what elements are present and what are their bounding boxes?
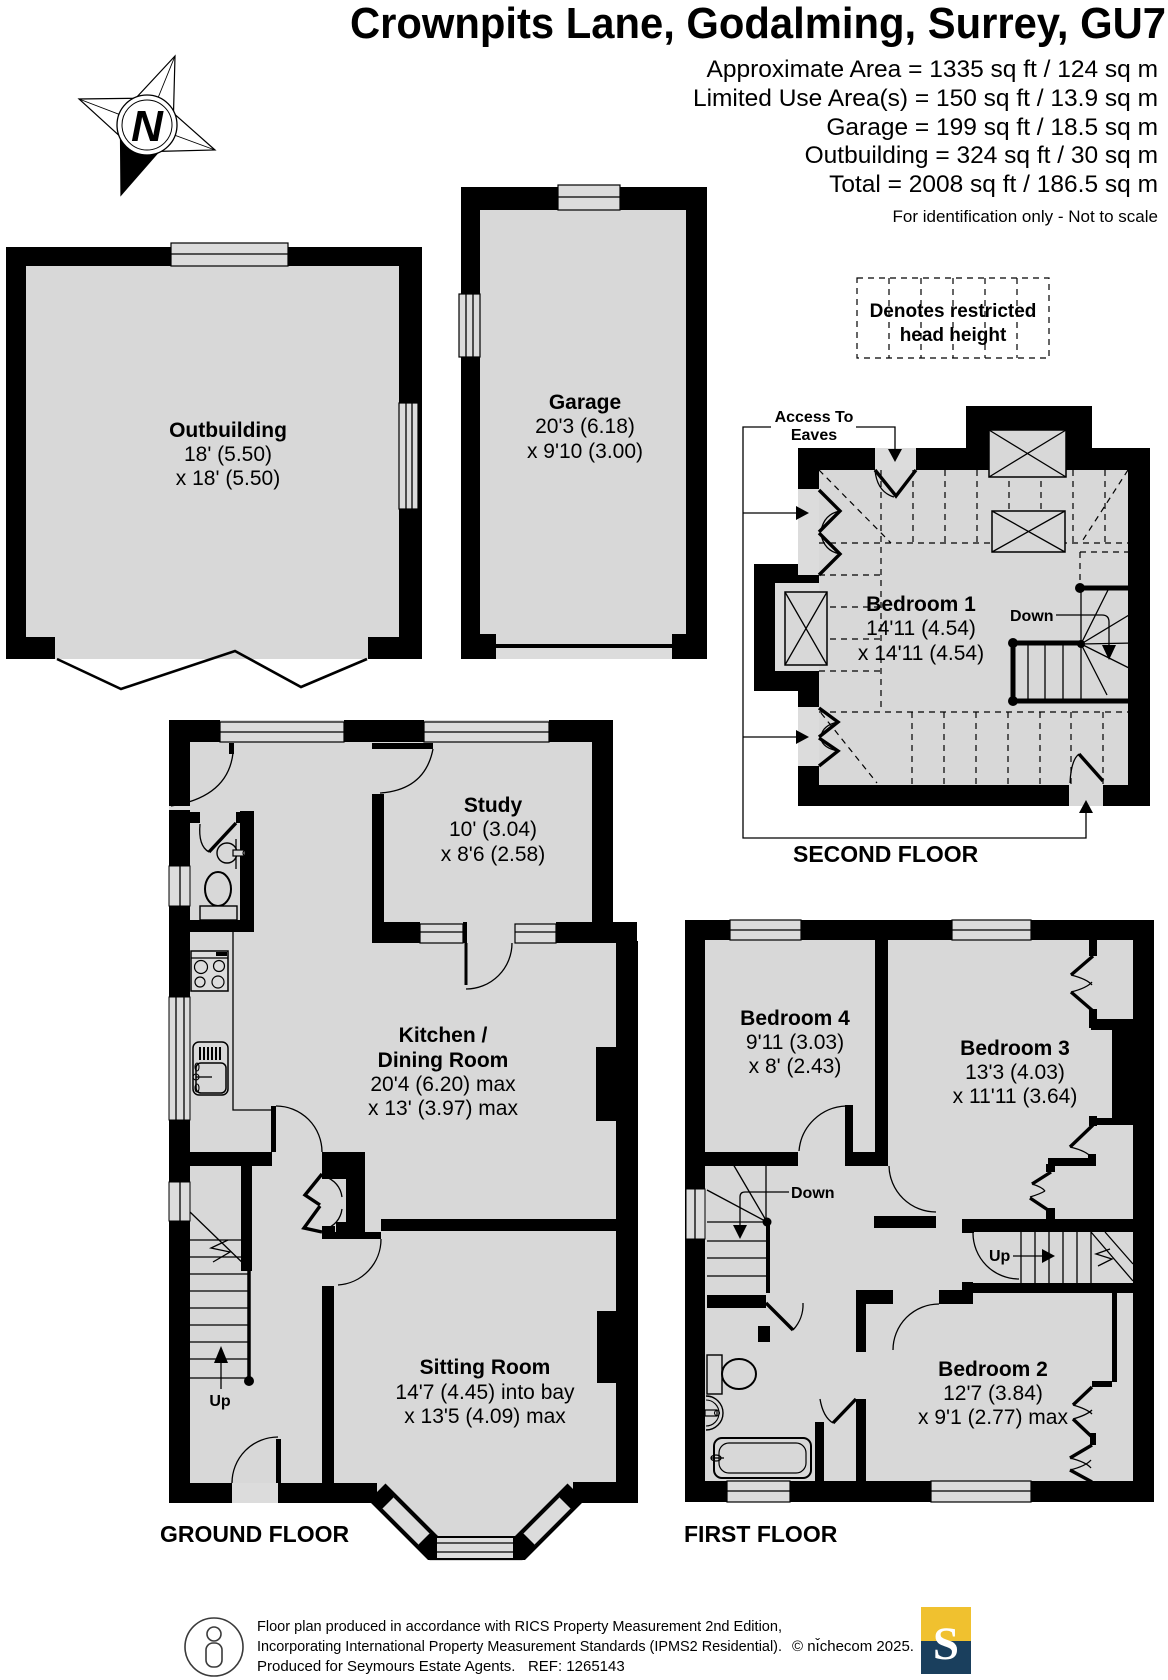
svg-text:Produced for Seymours Estate A: Produced for Seymours Estate Agents. REF… (257, 1658, 625, 1675)
svg-text:For identification only - Not: For identification only - Not to scale (892, 207, 1158, 226)
svg-text:Bedroom 4: Bedroom 4 (740, 1007, 850, 1030)
svg-text:Outbuilding = 324 sq ft / 30 s: Outbuilding = 324 sq ft / 30 sq m (805, 142, 1158, 169)
svg-text:Up: Up (209, 1393, 231, 1410)
svg-text:Eaves: Eaves (791, 427, 837, 444)
svg-text:x 9'10 (3.00): x 9'10 (3.00) (527, 440, 643, 463)
svg-text:Dining Room: Dining Room (378, 1049, 509, 1072)
svg-text:Crownpits Lane, Godalming, Sur: Crownpits Lane, Godalming, Surrey, GU7 (350, 0, 1166, 48)
svg-text:x 13'5 (4.09) max: x 13'5 (4.09) max (404, 1405, 566, 1428)
svg-text:Sitting Room: Sitting Room (420, 1356, 551, 1379)
svg-text:Garage: Garage (549, 391, 621, 414)
svg-text:Access To: Access To (775, 409, 854, 426)
svg-text:Denotes restricted: Denotes restricted (870, 301, 1037, 322)
svg-text:Down: Down (791, 1185, 835, 1202)
svg-text:14'7 (4.45) into bay: 14'7 (4.45) into bay (395, 1381, 575, 1404)
svg-text:GROUND FLOOR: GROUND FLOOR (160, 1521, 349, 1547)
svg-text:Bedroom 1: Bedroom 1 (866, 593, 976, 616)
svg-text:Down: Down (1010, 608, 1054, 625)
svg-text:Outbuilding: Outbuilding (169, 419, 287, 442)
svg-text:18' (5.50): 18' (5.50) (184, 443, 272, 466)
svg-text:20'3 (6.18): 20'3 (6.18) (535, 415, 635, 438)
svg-text:10' (3.04): 10' (3.04) (449, 818, 537, 841)
svg-text:Bedroom 3: Bedroom 3 (960, 1037, 1070, 1060)
svg-text:x 8'6 (2.58): x 8'6 (2.58) (441, 843, 545, 866)
svg-text:Study: Study (464, 794, 523, 817)
svg-text:Garage = 199 sq ft / 18.5 sq m: Garage = 199 sq ft / 18.5 sq m (826, 114, 1158, 141)
svg-text:Up: Up (989, 1248, 1011, 1265)
svg-text:SECOND FLOOR: SECOND FLOOR (793, 841, 979, 867)
svg-text:20'4 (6.20) max: 20'4 (6.20) max (370, 1073, 516, 1096)
svg-text:Floor plan produced in accorda: Floor plan produced in accordance with R… (257, 1618, 782, 1635)
svg-text:x 11'11 (3.64): x 11'11 (3.64) (953, 1085, 1078, 1108)
svg-text:Limited Use Area(s) = 150 sq f: Limited Use Area(s) = 150 sq ft / 13.9 s… (693, 85, 1158, 112)
svg-text:x 8' (2.43): x 8' (2.43) (749, 1055, 842, 1078)
svg-text:x 9'1 (2.77) max: x 9'1 (2.77) max (918, 1406, 1068, 1429)
svg-text:9'11 (3.03): 9'11 (3.03) (746, 1031, 844, 1054)
svg-text:12'7 (3.84): 12'7 (3.84) (943, 1382, 1043, 1405)
svg-text:head height: head height (900, 325, 1007, 346)
svg-text:Incorporating International Pr: Incorporating International Property Mea… (257, 1638, 782, 1655)
svg-text:N: N (131, 102, 164, 151)
svg-text:© nı̌checom 2025.: © nı̌checom 2025. (792, 1638, 914, 1655)
svg-text:13'3 (4.03): 13'3 (4.03) (965, 1061, 1065, 1084)
svg-text:Total = 2008 sq ft / 186.5 sq: Total = 2008 sq ft / 186.5 sq m (829, 171, 1158, 198)
svg-text:Kitchen /: Kitchen / (399, 1024, 488, 1047)
svg-text:x 18' (5.50): x 18' (5.50) (176, 467, 280, 490)
svg-text:Approximate Area = 1335 sq ft: Approximate Area = 1335 sq ft / 124 sq m (707, 56, 1158, 83)
svg-text:FIRST FLOOR: FIRST FLOOR (684, 1521, 838, 1547)
svg-text:14'11 (4.54): 14'11 (4.54) (866, 617, 976, 640)
svg-text:x 13' (3.97) max: x 13' (3.97) max (368, 1097, 518, 1120)
svg-text:S: S (933, 1618, 959, 1670)
svg-text:Bedroom 2: Bedroom 2 (938, 1358, 1048, 1381)
svg-text:x 14'11 (4.54): x 14'11 (4.54) (858, 642, 984, 665)
